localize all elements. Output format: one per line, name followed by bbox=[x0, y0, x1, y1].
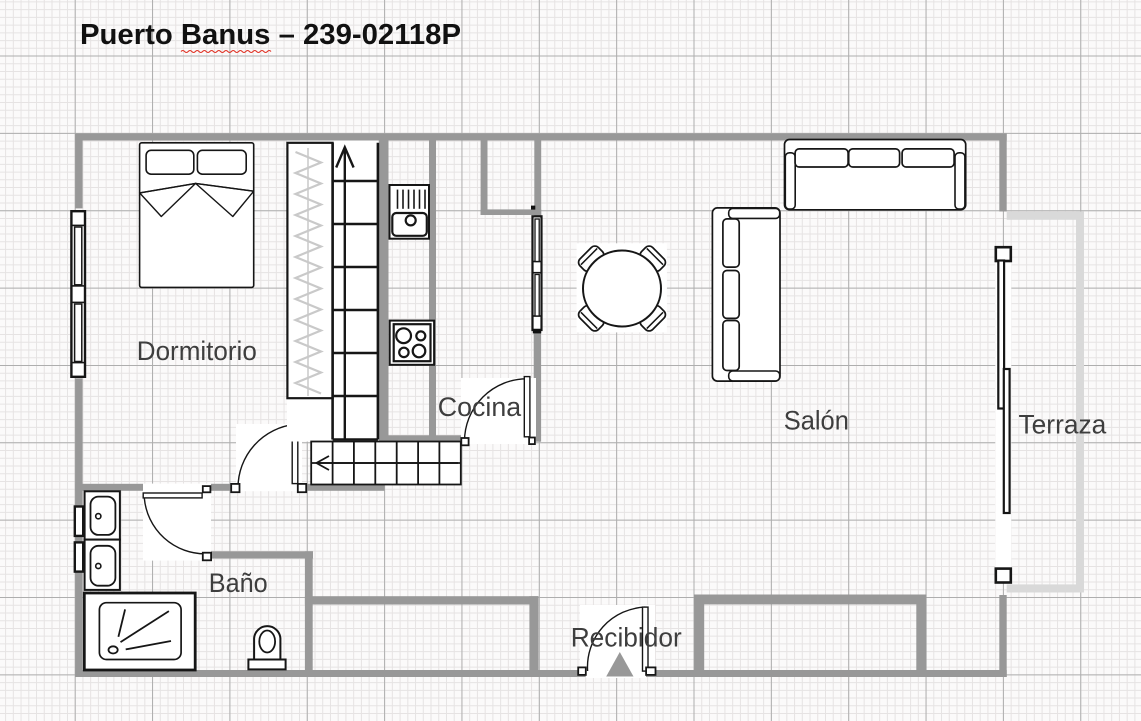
svg-text:Recibidor: Recibidor bbox=[571, 623, 682, 653]
svg-text:Cocina: Cocina bbox=[438, 392, 522, 422]
svg-text:Salón: Salón bbox=[784, 406, 849, 436]
svg-text:Baño: Baño bbox=[209, 568, 268, 598]
svg-text:Terraza: Terraza bbox=[1019, 410, 1107, 440]
svg-text:Dormitorio: Dormitorio bbox=[137, 336, 257, 366]
svg-text:Puerto Banus – 239-02118P: Puerto Banus – 239-02118P bbox=[80, 19, 461, 51]
